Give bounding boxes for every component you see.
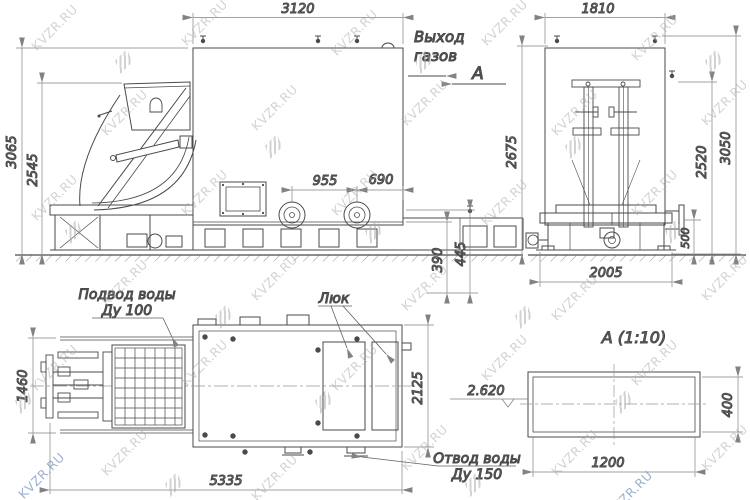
label-section-mark: А (471, 64, 484, 84)
technical-drawing: 3120 3065 2545 955 690 390 445 Выход газ… (0, 0, 750, 500)
dim-flange-offset: 690 (369, 173, 394, 188)
front-view: 3120 3065 2545 955 690 390 445 Выход газ… (5, 2, 523, 293)
label-gas-outlet-line1: Выход (414, 28, 465, 46)
winch-mechanism (41, 352, 112, 421)
label-gas-outlet-line2: газов (414, 47, 457, 65)
dim-hopper-height: 2545 (26, 153, 41, 186)
skip-hopper (80, 82, 196, 210)
dim-flange-pitch: 955 (313, 174, 338, 189)
dim-overall-width: 3120 (281, 2, 314, 17)
dim-total-length: 5335 (209, 474, 242, 489)
base-frame (50, 205, 523, 250)
drawing-sheet: 3120 3065 2545 955 690 390 445 Выход газ… (0, 0, 750, 500)
label-water-supply-line2: Ду 100 (101, 303, 152, 319)
dim-side-right-inner: 2520 (695, 145, 710, 178)
detail-title: А (1:10) (601, 328, 666, 347)
dim-body-width: 2125 (411, 371, 426, 404)
dim-overall-height: 3065 (5, 135, 20, 168)
side-base (526, 205, 676, 250)
detail-dimensions (533, 377, 743, 477)
plan-valve-icons (203, 335, 360, 455)
label-water-drain-line2: Ду 150 (451, 467, 502, 483)
dim-nozzle-height: 500 (679, 228, 692, 249)
roof-valve-icons (200, 36, 394, 48)
dim-side-top-width: 1810 (581, 2, 614, 17)
elevation-mark-icon (450, 399, 528, 407)
dim-side-right-outer: 3050 (719, 131, 734, 164)
side-view: 1810 2675 2520 3050 500 2005 (505, 2, 746, 287)
dim-grate-width: 1460 (16, 369, 31, 402)
label-hatch: Люк (318, 291, 350, 307)
front-dimensions (16, 13, 478, 293)
label-water-supply-line1: Подвод воды (78, 287, 175, 303)
dim-elevation: 2.620 (467, 384, 504, 399)
dim-pit-depth-1: 390 (431, 248, 446, 273)
dim-side-left-height: 2675 (505, 135, 520, 168)
dim-pit-depth-2: 445 (454, 242, 469, 267)
grate (112, 345, 185, 428)
dim-side-base-width: 2005 (589, 266, 622, 281)
plan-dimensions (28, 325, 434, 494)
dim-detail-length: 1200 (591, 456, 624, 471)
label-water-drain-line1: Отвод воды (433, 451, 521, 467)
dim-detail-height: 400 (721, 393, 736, 418)
plan-view: 1460 2125 5335 Подвод воды Ду 100 Люк От… (16, 287, 521, 494)
